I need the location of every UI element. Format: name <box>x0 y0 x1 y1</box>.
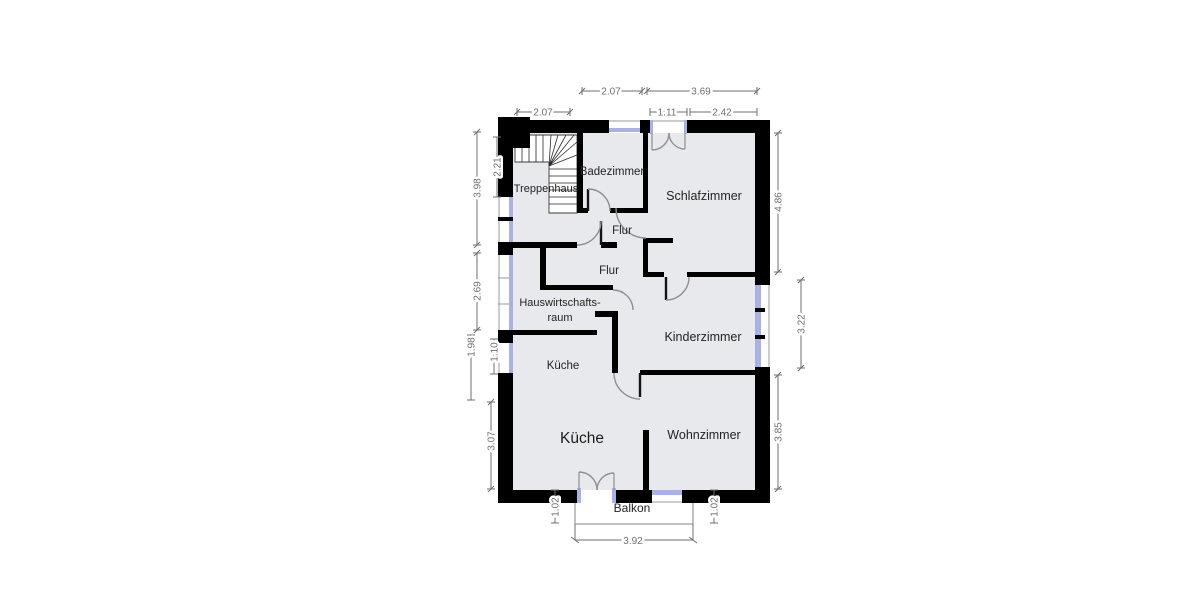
room-label-kinderzimmer: Kinderzimmer <box>664 330 741 344</box>
wall-hwr-door-stub <box>595 311 618 317</box>
wall-corridor-west <box>612 317 618 373</box>
window-badezimmer <box>609 120 640 133</box>
dim-label-top-badezimmer: 2.07 <box>601 87 621 98</box>
room-label-hauswirtschaftsraum-line2: raum <box>547 312 572 324</box>
dim-label-left-kueche-lower: 3.07 <box>487 431 498 451</box>
dim-label-balkon-depth-right: 1.02 <box>710 497 721 517</box>
dim-label-left-hauswirtschaftsraum: 2.69 <box>473 281 484 301</box>
dim-label-top-schlafzimmer-total: 3.69 <box>691 87 711 98</box>
dim-label-right-kinderzimmer: 3.22 <box>797 314 808 334</box>
wall-right-2 <box>755 367 770 503</box>
wall-hwr-south <box>513 330 597 335</box>
wall-hwr-north <box>546 285 613 290</box>
wall-bottom-3 <box>682 490 770 503</box>
room-label-kueche-main: Küche <box>560 430 604 447</box>
wall-kinderzimmer-south <box>640 370 755 375</box>
room-label-schlafzimmer: Schlafzimmer <box>666 189 742 203</box>
window-treppenhaus <box>498 197 513 242</box>
room-label-balkon: Balkon <box>614 501 651 515</box>
wall-flur-north-2 <box>601 242 617 248</box>
apartment-floor <box>505 125 763 498</box>
dim-label-top-schlafzimmer-wall: 2.42 <box>712 108 732 119</box>
wall-flur-west <box>540 248 546 290</box>
room-label-hauswirtschaftsraum-line1: Hauswirtschafts- <box>519 297 601 309</box>
wall-right-1 <box>755 120 770 285</box>
wall-left-4 <box>498 373 513 503</box>
wall-schlafzimmer-closet <box>643 238 673 243</box>
dim-label-left-kueche-upper: 1.98 <box>467 337 478 357</box>
window-hauswirtschaftsraum <box>498 255 513 330</box>
dim-label-balkon-depth-left: 1.02 <box>551 497 562 517</box>
dim-label-left-kueche-window: 1.10 <box>490 342 501 362</box>
dim-label-left-treppenhaus-outer: 3.98 <box>473 178 484 198</box>
dim-label-top-treppenhaus: 2.07 <box>533 108 553 119</box>
room-label-badezimmer: Badezimmer <box>580 166 645 178</box>
dim-label-right-wohnzimmer: 3.85 <box>774 422 785 442</box>
dim-label-balkon-width: 3.92 <box>623 536 643 547</box>
window-kinderzimmer <box>755 285 770 367</box>
room-label-kueche-upper: Küche <box>547 360 580 372</box>
room-label-flur-upper: Flur <box>612 225 632 237</box>
room-label-flur-lower: Flur <box>599 265 619 277</box>
wall-left-2 <box>498 242 513 255</box>
wall-bottom-1 <box>498 490 577 503</box>
dim-label-left-treppenhaus-inner: 2.21 <box>493 157 504 177</box>
wall-schlafzimmer-south-2 <box>687 272 770 277</box>
wall-kueche-wohnzimmer <box>643 430 649 490</box>
floor-plan: Treppenhaus Badezimmer Schlafzimmer Flur… <box>0 0 1200 600</box>
room-label-treppenhaus: Treppenhaus <box>514 183 579 195</box>
door-opening-balkon <box>577 488 616 503</box>
wall-top-1 <box>498 120 609 133</box>
wall-flur-north-1 <box>513 242 577 248</box>
dim-label-right-schlafzimmer: 4.86 <box>774 192 785 212</box>
room-label-wohnzimmer: Wohnzimmer <box>667 428 740 442</box>
wall-schlafzimmer-south-1 <box>643 272 664 277</box>
floor-plan-canvas: Treppenhaus Badezimmer Schlafzimmer Flur… <box>0 0 1200 600</box>
window-wohnzimmer <box>652 490 682 503</box>
wall-schlafzimmer-west-2 <box>643 243 648 277</box>
wall-left-3 <box>498 330 513 343</box>
door-opening-schlafzimmer-top <box>650 120 687 134</box>
wall-top-2 <box>640 120 650 133</box>
dim-label-top-schlafzimmer-door: 1.11 <box>658 108 677 119</box>
